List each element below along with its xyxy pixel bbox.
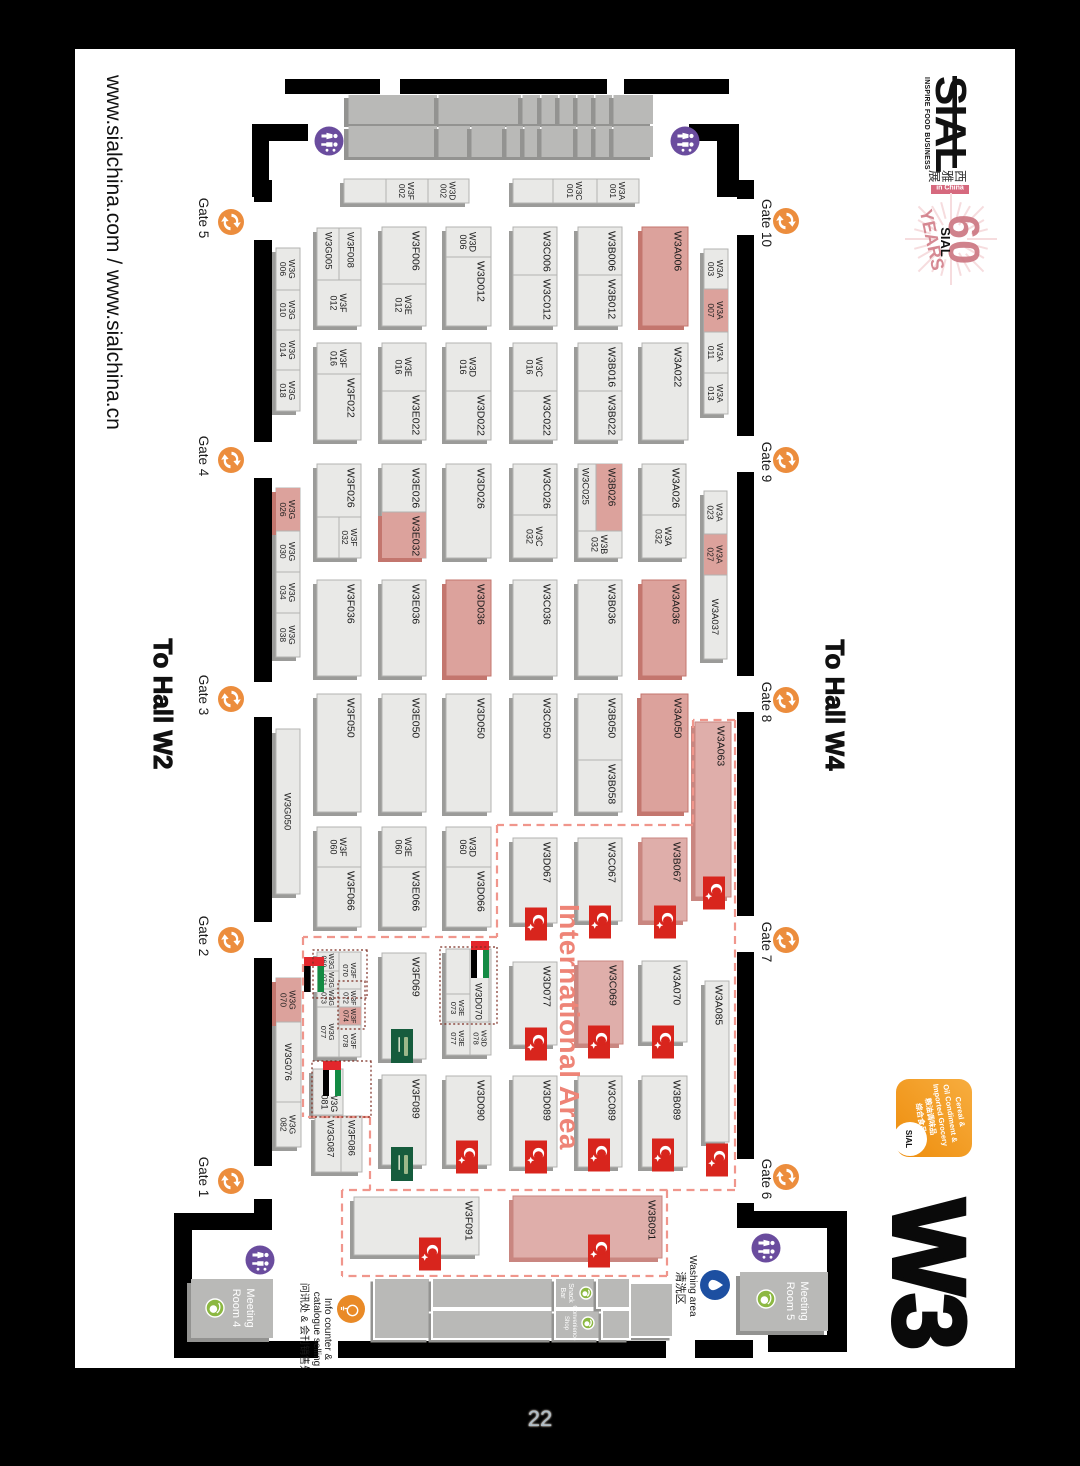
svg-text:W3F091: W3F091 (463, 1201, 475, 1241)
svg-text:018: 018 (278, 383, 288, 397)
svg-text:W3B091: W3B091 (646, 1200, 658, 1240)
svg-text:W3F086: W3F086 (346, 1120, 357, 1156)
svg-text:W3C: W3C (534, 357, 544, 378)
svg-text:W3G: W3G (287, 259, 297, 278)
svg-text:W3B022: W3B022 (606, 395, 618, 435)
svg-text:016: 016 (394, 359, 404, 374)
svg-text:W3E: W3E (403, 837, 413, 857)
svg-text:070: 070 (341, 964, 350, 977)
svg-text:清洗区: 清洗区 (674, 1272, 687, 1305)
svg-text:Gate 1: Gate 1 (196, 1157, 211, 1198)
svg-text:Meeting: Meeting (798, 1281, 810, 1320)
svg-text:Gate 9: Gate 9 (759, 442, 774, 483)
svg-text:W3D: W3D (468, 232, 478, 253)
svg-text:W3C026: W3C026 (541, 468, 553, 509)
svg-text:W3B016: W3B016 (606, 347, 618, 387)
svg-text:006: 006 (458, 234, 468, 249)
svg-text:W3C089: W3C089 (606, 1080, 618, 1121)
svg-text:W3D090: W3D090 (475, 1080, 487, 1121)
svg-text:W3B026: W3B026 (606, 468, 617, 507)
svg-text:W3F: W3F (338, 838, 348, 858)
svg-text:003: 003 (706, 262, 716, 276)
svg-text:W3E: W3E (403, 357, 413, 377)
svg-text:W3G087: W3G087 (325, 1120, 336, 1158)
svg-text:006: 006 (278, 262, 288, 276)
svg-text:W3G: W3G (287, 300, 297, 319)
svg-text:西: 西 (953, 170, 967, 183)
svg-text:W3D050: W3D050 (475, 698, 487, 739)
svg-text:W3B: W3B (599, 535, 609, 555)
svg-text:W3A063: W3A063 (715, 726, 727, 766)
svg-text:W3E036: W3E036 (410, 584, 422, 624)
svg-text:001: 001 (565, 184, 575, 198)
svg-text:016: 016 (329, 351, 339, 366)
svg-text:W3F: W3F (338, 349, 348, 369)
svg-text:W3F: W3F (349, 529, 359, 547)
svg-text:Room 5: Room 5 (784, 1282, 796, 1321)
svg-text:002: 002 (439, 184, 449, 198)
svg-text:070: 070 (279, 993, 289, 1007)
svg-text:W3A070: W3A070 (671, 965, 683, 1005)
svg-text:016: 016 (525, 359, 535, 374)
svg-text:027: 027 (706, 547, 716, 561)
svg-text:W3D026: W3D026 (475, 468, 487, 509)
svg-text:007: 007 (706, 303, 716, 317)
svg-text:雅: 雅 (940, 170, 955, 183)
svg-text:To Hall W4: To Hall W4 (820, 640, 850, 772)
svg-text:W3F: W3F (349, 1033, 358, 1049)
svg-text:To Hall W2: To Hall W2 (148, 639, 178, 770)
svg-text:W3G: W3G (327, 1023, 336, 1040)
svg-text:081: 081 (320, 1094, 330, 1109)
svg-text:W3C036: W3C036 (541, 584, 553, 625)
svg-text:W3A050: W3A050 (672, 698, 684, 738)
svg-text:展: 展 (927, 170, 941, 183)
svg-text:Gate 3: Gate 3 (196, 675, 211, 716)
svg-text:016: 016 (458, 359, 468, 374)
svg-text:W3D012: W3D012 (475, 261, 487, 302)
svg-text:W3B050: W3B050 (606, 698, 618, 738)
svg-text:W3F022: W3F022 (345, 378, 357, 418)
svg-text:077: 077 (319, 1026, 328, 1039)
svg-text:W3F050: W3F050 (345, 698, 357, 738)
svg-text:W3G: W3G (287, 340, 297, 359)
svg-text:W3C050: W3C050 (541, 698, 553, 739)
svg-text:W3F069: W3F069 (410, 957, 422, 997)
svg-text:catalogue selling: catalogue selling (311, 1292, 322, 1367)
svg-text:W3G: W3G (288, 1115, 298, 1134)
svg-text:001: 001 (608, 184, 618, 198)
svg-text:060: 060 (329, 839, 339, 854)
svg-text:082: 082 (279, 1117, 289, 1131)
svg-text:Shop: Shop (563, 1316, 569, 1331)
svg-text:W3F089: W3F089 (410, 1079, 422, 1119)
svg-text:Gate 4: Gate 4 (196, 436, 211, 477)
svg-text:023: 023 (706, 505, 716, 519)
svg-text:W3G: W3G (287, 583, 297, 602)
svg-text:SIAL: SIAL (926, 76, 975, 172)
svg-text:Washing area: Washing area (687, 1255, 698, 1317)
svg-text:W3A: W3A (715, 343, 725, 362)
svg-text:W3G: W3G (287, 381, 297, 400)
svg-text:W3D: W3D (468, 837, 478, 858)
svg-text:W3D: W3D (448, 182, 458, 201)
svg-text:W3G: W3G (287, 542, 297, 561)
svg-text:014: 014 (278, 343, 288, 357)
svg-text:W3E: W3E (457, 1000, 466, 1016)
svg-text:W3G: W3G (327, 954, 334, 970)
svg-text:W3C067: W3C067 (606, 842, 618, 883)
svg-text:W3D067: W3D067 (541, 842, 553, 883)
svg-text:W3B067: W3B067 (671, 842, 683, 882)
svg-text:W3A022: W3A022 (672, 347, 684, 387)
svg-text:012: 012 (394, 297, 404, 312)
svg-text:Bar: Bar (559, 1288, 566, 1300)
svg-text:W3C012: W3C012 (541, 279, 553, 320)
svg-text:W3E: W3E (457, 1030, 466, 1046)
svg-text:W3A: W3A (715, 260, 725, 279)
svg-text:077: 077 (449, 1032, 458, 1045)
svg-text:Meeting: Meeting (244, 1288, 256, 1327)
svg-text:W3A: W3A (617, 182, 627, 201)
svg-text:W3A: W3A (715, 301, 725, 320)
svg-text:W3F026: W3F026 (345, 468, 357, 508)
svg-text:W3E022: W3E022 (410, 395, 422, 435)
svg-text:W3D: W3D (468, 357, 478, 378)
svg-text:032: 032 (654, 529, 664, 544)
svg-text:W3F: W3F (349, 963, 358, 979)
svg-text:078: 078 (472, 1032, 481, 1045)
svg-text:038: 038 (278, 628, 288, 642)
svg-text:W3D077: W3D077 (541, 966, 553, 1007)
svg-text:www.sialchina.com / www.sialch: www.sialchina.com / www.sialchina.cn (102, 74, 125, 430)
svg-text:W3C006: W3C006 (541, 231, 553, 272)
svg-text:W3F: W3F (349, 1009, 356, 1024)
svg-text:032: 032 (525, 529, 535, 544)
svg-text:Gate 6: Gate 6 (759, 1159, 774, 1200)
svg-text:W3G: W3G (287, 625, 297, 644)
svg-text:W3G005: W3G005 (323, 232, 334, 270)
svg-text:026: 026 (278, 502, 288, 516)
svg-text:W3E026: W3E026 (410, 468, 422, 508)
svg-text:W3D: W3D (480, 1030, 489, 1047)
svg-text:Gate 7: Gate 7 (759, 922, 774, 963)
svg-text:W3G050: W3G050 (282, 793, 293, 831)
svg-text:SIAL: SIAL (938, 227, 953, 257)
svg-text:W3A: W3A (715, 545, 725, 564)
svg-text:W3B036: W3B036 (606, 584, 618, 624)
svg-text:074: 074 (342, 1010, 349, 1022)
svg-text:W3A006: W3A006 (672, 231, 684, 271)
svg-text:012: 012 (329, 295, 339, 310)
svg-text:W3A: W3A (715, 384, 725, 403)
svg-text:W3D089: W3D089 (541, 1080, 553, 1121)
svg-text:W3E032: W3E032 (410, 516, 422, 556)
svg-text:W3F008: W3F008 (345, 232, 356, 268)
svg-text:Room 4: Room 4 (230, 1289, 242, 1328)
svg-text:W3D022: W3D022 (475, 395, 487, 436)
svg-text:W3E: W3E (403, 295, 413, 315)
svg-text:International Area: International Area (554, 904, 585, 1150)
svg-text:W3G: W3G (287, 500, 297, 519)
svg-text:W3D066: W3D066 (475, 871, 487, 912)
svg-text:W3C069: W3C069 (607, 965, 619, 1006)
svg-text:W3B006: W3B006 (606, 231, 618, 271)
svg-text:W3C: W3C (534, 527, 544, 548)
svg-text:W3E066: W3E066 (410, 871, 422, 911)
svg-text:Gate 2: Gate 2 (196, 916, 211, 957)
svg-text:W3B089: W3B089 (671, 1080, 683, 1120)
svg-text:W3A037: W3A037 (709, 599, 720, 635)
svg-text:W3A036: W3A036 (670, 584, 682, 624)
svg-text:078: 078 (341, 1035, 350, 1048)
svg-text:W3F066: W3F066 (345, 871, 357, 911)
svg-text:W3A085: W3A085 (713, 985, 725, 1025)
svg-text:060: 060 (458, 839, 468, 854)
svg-text:W3C: W3C (574, 182, 584, 201)
svg-text:W3G: W3G (327, 972, 334, 988)
svg-text:W3A: W3A (715, 503, 725, 522)
svg-text:013: 013 (706, 386, 716, 400)
svg-text:034: 034 (278, 585, 288, 599)
svg-text:W3D070: W3D070 (473, 983, 484, 1020)
svg-text:Gate 5: Gate 5 (196, 198, 211, 239)
svg-text:030: 030 (278, 544, 288, 558)
svg-text:Convenience: Convenience (571, 1305, 577, 1341)
svg-text:032: 032 (340, 530, 350, 544)
svg-text:010: 010 (278, 303, 288, 317)
svg-text:Gate 8: Gate 8 (759, 682, 774, 723)
svg-text:INSPIRE FOOD BUSINESS: INSPIRE FOOD BUSINESS (923, 77, 930, 170)
svg-text:Gate 10: Gate 10 (759, 199, 774, 247)
svg-text:in China: in China (936, 185, 964, 192)
svg-text:060: 060 (394, 839, 404, 854)
svg-text:SIAL: SIAL (904, 1130, 913, 1148)
svg-text:W3B012: W3B012 (606, 279, 618, 319)
svg-text:W3: W3 (872, 1199, 986, 1348)
svg-text:W3C022: W3C022 (541, 395, 553, 436)
svg-text:W3D036: W3D036 (475, 584, 487, 625)
svg-text:W3B058: W3B058 (606, 764, 618, 804)
svg-text:W3F036: W3F036 (345, 584, 357, 624)
svg-text:002: 002 (397, 184, 407, 198)
svg-text:W3A026: W3A026 (670, 468, 682, 508)
svg-text:W3F: W3F (406, 182, 416, 200)
svg-text:073: 073 (449, 1002, 458, 1015)
svg-text:W3E050: W3E050 (410, 698, 422, 738)
svg-text:Info counter &: Info counter & (322, 1298, 333, 1361)
svg-text:Snack: Snack (567, 1283, 574, 1303)
svg-text:W3F006: W3F006 (410, 231, 422, 271)
svg-text:W3G: W3G (288, 990, 298, 1009)
svg-text:W3A: W3A (663, 527, 673, 547)
svg-text:W3C025: W3C025 (580, 468, 591, 505)
svg-text:W3F: W3F (338, 294, 348, 314)
svg-text:032: 032 (590, 537, 600, 552)
svg-text:W3G076: W3G076 (282, 1043, 293, 1081)
svg-text:011: 011 (706, 346, 716, 360)
